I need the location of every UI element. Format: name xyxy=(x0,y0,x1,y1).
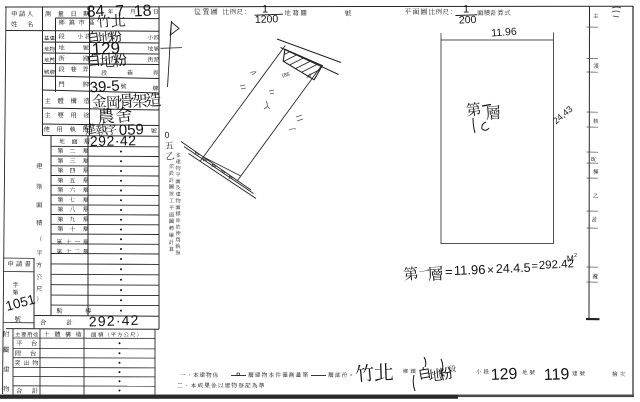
svg-text:地: 地 xyxy=(59,137,65,146)
svg-text:建: 建 xyxy=(2,365,10,374)
svg-text:日: 日 xyxy=(153,8,159,16)
svg-text:11.96: 11.96 xyxy=(454,262,486,278)
svg-text:小: 小 xyxy=(475,368,482,376)
svg-text:號: 號 xyxy=(14,315,22,324)
svg-text:門: 門 xyxy=(59,80,65,89)
svg-text:係: 係 xyxy=(213,370,219,379)
svg-text:二: 二 xyxy=(177,381,183,390)
svg-text:用: 用 xyxy=(57,125,64,134)
svg-text:圖: 圖 xyxy=(421,6,428,16)
svg-text:200: 200 xyxy=(459,14,477,27)
svg-text:平: 平 xyxy=(111,330,117,338)
svg-text:第: 第 xyxy=(57,146,64,155)
svg-text:小: 小 xyxy=(77,32,83,41)
svg-text:地: 地 xyxy=(59,43,65,52)
svg-text:種: 種 xyxy=(593,168,599,176)
svg-text:號: 號 xyxy=(530,369,536,377)
svg-text:建: 建 xyxy=(35,161,43,170)
svg-text:1051: 1051 xyxy=(4,292,37,314)
svg-text:例: 例 xyxy=(230,7,237,16)
svg-text:件: 件 xyxy=(275,370,281,379)
svg-text:方: 方 xyxy=(36,260,43,269)
svg-text:第: 第 xyxy=(57,175,64,184)
svg-text:市: 市 xyxy=(79,18,86,27)
svg-text:巷: 巷 xyxy=(70,65,78,74)
svg-text:屬: 屬 xyxy=(3,345,10,354)
svg-text:乙: 乙 xyxy=(593,192,599,200)
svg-text:二: 二 xyxy=(75,248,81,256)
svg-text:合: 合 xyxy=(40,318,47,327)
svg-text:申: 申 xyxy=(11,9,18,18)
svg-text:計: 計 xyxy=(31,386,39,395)
svg-text:突: 突 xyxy=(15,358,21,367)
svg-text:圖: 圖 xyxy=(301,8,308,17)
svg-text:層: 層 xyxy=(328,370,334,379)
svg-text:物: 物 xyxy=(231,381,237,390)
svg-text:層: 層 xyxy=(83,195,89,204)
svg-text:第: 第 xyxy=(57,156,64,165)
svg-text:本: 本 xyxy=(192,370,199,379)
svg-text:119: 119 xyxy=(544,366,570,384)
svg-text:物: 物 xyxy=(33,358,39,367)
svg-text:合: 合 xyxy=(16,386,23,395)
svg-text:粉: 粉 xyxy=(112,49,129,71)
svg-text:照: 照 xyxy=(175,250,180,257)
svg-text:地: 地 xyxy=(522,369,528,377)
svg-text:算: 算 xyxy=(169,246,174,253)
svg-text:體: 體 xyxy=(57,96,65,105)
svg-text:鎮: 鎮 xyxy=(69,18,76,27)
svg-text:街: 街 xyxy=(59,54,66,63)
svg-text:次: 次 xyxy=(620,370,626,378)
svg-text:鎮: 鎮 xyxy=(411,367,417,375)
svg-text:測: 測 xyxy=(44,9,51,18)
svg-text:方: 方 xyxy=(117,330,123,338)
svg-text:請: 請 xyxy=(15,259,23,268)
svg-text:量: 量 xyxy=(296,370,302,379)
svg-text:層: 層 xyxy=(485,101,502,124)
svg-text:第: 第 xyxy=(465,98,483,121)
svg-text:段: 段 xyxy=(154,33,160,42)
svg-text:第: 第 xyxy=(57,195,64,204)
svg-text:建: 建 xyxy=(255,370,261,379)
svg-text:層: 層 xyxy=(83,146,89,155)
svg-text:巷: 巷 xyxy=(126,68,133,77)
svg-text:號: 號 xyxy=(150,126,157,135)
svg-text:用: 用 xyxy=(71,111,78,120)
svg-text:九: 九 xyxy=(70,214,77,223)
svg-text:一: 一 xyxy=(75,238,81,246)
svg-text:層: 層 xyxy=(427,261,445,285)
svg-text:位: 位 xyxy=(194,6,201,16)
svg-text:執: 執 xyxy=(70,125,77,134)
svg-text:成: 成 xyxy=(197,381,203,390)
svg-text:份: 份 xyxy=(342,370,348,379)
svg-text:層: 層 xyxy=(83,248,89,256)
svg-text:構: 構 xyxy=(71,96,78,105)
svg-text:公: 公 xyxy=(124,330,130,338)
svg-text:部: 部 xyxy=(335,370,341,379)
svg-text:段: 段 xyxy=(59,65,66,74)
svg-text:計: 計 xyxy=(490,8,498,17)
svg-text:物: 物 xyxy=(206,370,212,379)
svg-text:途: 途 xyxy=(83,111,90,120)
svg-text:台: 台 xyxy=(30,349,36,358)
svg-text:18: 18 xyxy=(133,3,152,21)
svg-text:四: 四 xyxy=(70,166,76,175)
svg-text:平: 平 xyxy=(16,339,23,348)
svg-text:比: 比 xyxy=(223,7,230,16)
svg-text:段: 段 xyxy=(448,363,457,375)
svg-text:核: 核 xyxy=(593,117,599,125)
svg-text:平: 平 xyxy=(405,6,412,16)
svg-text:公: 公 xyxy=(36,272,43,281)
svg-text:七: 七 xyxy=(70,195,76,204)
svg-text:層: 層 xyxy=(83,224,89,233)
svg-text:主: 主 xyxy=(45,111,52,120)
svg-text:為: 為 xyxy=(252,381,258,390)
svg-text:第: 第 xyxy=(57,248,63,256)
svg-text:登: 登 xyxy=(237,381,244,390)
svg-text:面: 面 xyxy=(36,200,43,209)
svg-text:物: 物 xyxy=(3,384,10,393)
svg-text:體: 體 xyxy=(54,330,61,339)
svg-text:層: 層 xyxy=(83,175,89,184)
svg-text:2: 2 xyxy=(574,253,577,259)
svg-text:準: 準 xyxy=(259,381,265,390)
svg-text:十: 十 xyxy=(66,248,72,256)
svg-text:面: 面 xyxy=(90,330,97,338)
svg-text:北: 北 xyxy=(373,356,394,386)
svg-text:24,43: 24,43 xyxy=(551,104,575,126)
svg-text:圖: 圖 xyxy=(211,6,218,16)
svg-text:1200: 1200 xyxy=(255,13,279,26)
svg-text:主: 主 xyxy=(45,96,52,105)
svg-text:籍: 籍 xyxy=(293,8,300,17)
svg-text:第: 第 xyxy=(301,370,308,379)
svg-text:建: 建 xyxy=(200,370,206,379)
svg-text:姓: 姓 xyxy=(11,20,18,29)
svg-text:造: 造 xyxy=(83,96,90,105)
svg-text:(85: (85 xyxy=(282,72,291,79)
svg-text:門: 門 xyxy=(50,56,55,64)
svg-text:計: 計 xyxy=(591,215,598,224)
svg-text:積: 積 xyxy=(36,218,43,227)
svg-text:第: 第 xyxy=(57,238,63,246)
svg-text:果: 果 xyxy=(204,381,210,390)
svg-text:物: 物 xyxy=(50,45,56,53)
svg-text:築: 築 xyxy=(36,182,43,191)
svg-text:）: ） xyxy=(137,330,142,338)
svg-text:例: 例 xyxy=(436,7,443,16)
svg-text:尺: 尺 xyxy=(130,330,136,338)
svg-text:僅: 僅 xyxy=(282,370,288,379)
svg-text:層: 層 xyxy=(83,238,89,246)
svg-text:層: 層 xyxy=(248,370,254,379)
svg-text:129: 129 xyxy=(490,366,518,384)
svg-text:=: = xyxy=(445,264,453,279)
svg-text:檢: 檢 xyxy=(612,370,618,378)
svg-text:第: 第 xyxy=(57,185,64,194)
svg-text:造: 造 xyxy=(75,330,82,339)
svg-text:尺: 尺 xyxy=(36,284,43,293)
svg-text:292·42: 292·42 xyxy=(90,132,137,149)
svg-text:層: 層 xyxy=(83,156,89,165)
svg-text:五: 五 xyxy=(70,175,76,184)
svg-text:記: 記 xyxy=(245,381,251,390)
svg-text:面: 面 xyxy=(413,6,420,16)
svg-text:第: 第 xyxy=(57,214,64,223)
svg-text:：: ： xyxy=(449,7,455,16)
svg-text:弄: 弄 xyxy=(153,68,159,77)
svg-text:11.96: 11.96 xyxy=(491,26,517,40)
svg-text:段: 段 xyxy=(59,32,66,41)
svg-text:鄉: 鄉 xyxy=(59,18,66,27)
svg-text:24.4.5: 24.4.5 xyxy=(496,261,531,276)
svg-text:地: 地 xyxy=(148,44,154,53)
svg-text:本: 本 xyxy=(190,381,197,390)
svg-text:使: 使 xyxy=(44,125,51,134)
svg-text:牌: 牌 xyxy=(50,68,56,76)
svg-text:測: 測 xyxy=(288,370,295,379)
svg-text:竹: 竹 xyxy=(354,358,375,387)
svg-text:附: 附 xyxy=(3,330,10,339)
svg-text:主: 主 xyxy=(593,12,599,20)
svg-text:複: 複 xyxy=(592,272,598,281)
svg-text:號: 號 xyxy=(344,9,352,18)
svg-text:陽: 陽 xyxy=(15,349,22,358)
svg-text:建: 建 xyxy=(50,34,56,42)
svg-text:積: 積 xyxy=(98,330,104,338)
svg-text:建: 建 xyxy=(225,381,231,390)
svg-text:第: 第 xyxy=(57,205,64,214)
svg-text:：: ： xyxy=(243,7,249,16)
svg-text:構: 構 xyxy=(65,330,71,339)
svg-text:號: 號 xyxy=(153,44,160,53)
svg-text:比: 比 xyxy=(429,7,436,16)
svg-text:置: 置 xyxy=(203,6,210,16)
svg-text:路: 路 xyxy=(154,55,160,64)
svg-text:人: 人 xyxy=(27,9,34,18)
svg-text:出: 出 xyxy=(24,358,30,367)
svg-text:係: 係 xyxy=(211,381,217,390)
svg-text:×: × xyxy=(487,263,494,277)
svg-text:六: 六 xyxy=(70,185,76,194)
svg-text:要: 要 xyxy=(58,111,65,120)
svg-text:途: 途 xyxy=(33,330,39,338)
svg-text:層: 層 xyxy=(83,214,89,223)
svg-text:=: = xyxy=(532,261,538,273)
svg-text:十: 十 xyxy=(66,238,72,246)
svg-text:。: 。 xyxy=(348,370,354,379)
svg-text:（: （ xyxy=(36,234,42,243)
svg-text:層: 層 xyxy=(83,166,89,175)
svg-text:土: 土 xyxy=(43,330,50,339)
svg-text:小: 小 xyxy=(147,33,154,42)
svg-text:式: 式 xyxy=(503,8,510,17)
svg-text:名: 名 xyxy=(27,20,34,29)
svg-text:8(: 8( xyxy=(591,157,596,163)
svg-text:層: 層 xyxy=(83,205,89,214)
svg-text:騎: 騎 xyxy=(56,306,64,315)
svg-text:）: ） xyxy=(36,294,42,303)
svg-text:十: 十 xyxy=(69,224,76,233)
svg-text:本: 本 xyxy=(267,370,274,379)
svg-text:物: 物 xyxy=(262,370,268,379)
svg-text:造: 造 xyxy=(144,87,162,112)
svg-text:計: 計 xyxy=(66,318,74,327)
svg-text:292·42: 292·42 xyxy=(89,312,140,330)
svg-text:段: 段 xyxy=(483,368,490,376)
svg-text:以: 以 xyxy=(218,381,224,390)
svg-text:號: 號 xyxy=(580,370,586,378)
svg-text:層: 層 xyxy=(83,185,89,194)
svg-text:八: 八 xyxy=(70,205,76,214)
svg-text:二: 二 xyxy=(70,146,76,155)
svg-text:面: 面 xyxy=(72,137,78,146)
svg-text:、: 、 xyxy=(187,370,193,379)
svg-text:三: 三 xyxy=(70,156,76,165)
svg-text:、: 、 xyxy=(184,381,190,390)
svg-text:平: 平 xyxy=(36,248,43,257)
svg-text:領: 領 xyxy=(593,62,599,70)
svg-text:一: 一 xyxy=(180,370,186,379)
svg-text:乙: 乙 xyxy=(165,149,176,163)
svg-text:申: 申 xyxy=(8,259,15,268)
svg-text:台: 台 xyxy=(31,339,37,348)
svg-text:第: 第 xyxy=(57,166,64,175)
svg-text:書: 書 xyxy=(25,259,32,268)
svg-text:第: 第 xyxy=(57,224,64,233)
svg-text:地: 地 xyxy=(285,8,292,17)
svg-text:請: 請 xyxy=(18,9,26,18)
svg-text:建: 建 xyxy=(572,370,578,378)
svg-text:鄉: 鄉 xyxy=(403,367,409,375)
